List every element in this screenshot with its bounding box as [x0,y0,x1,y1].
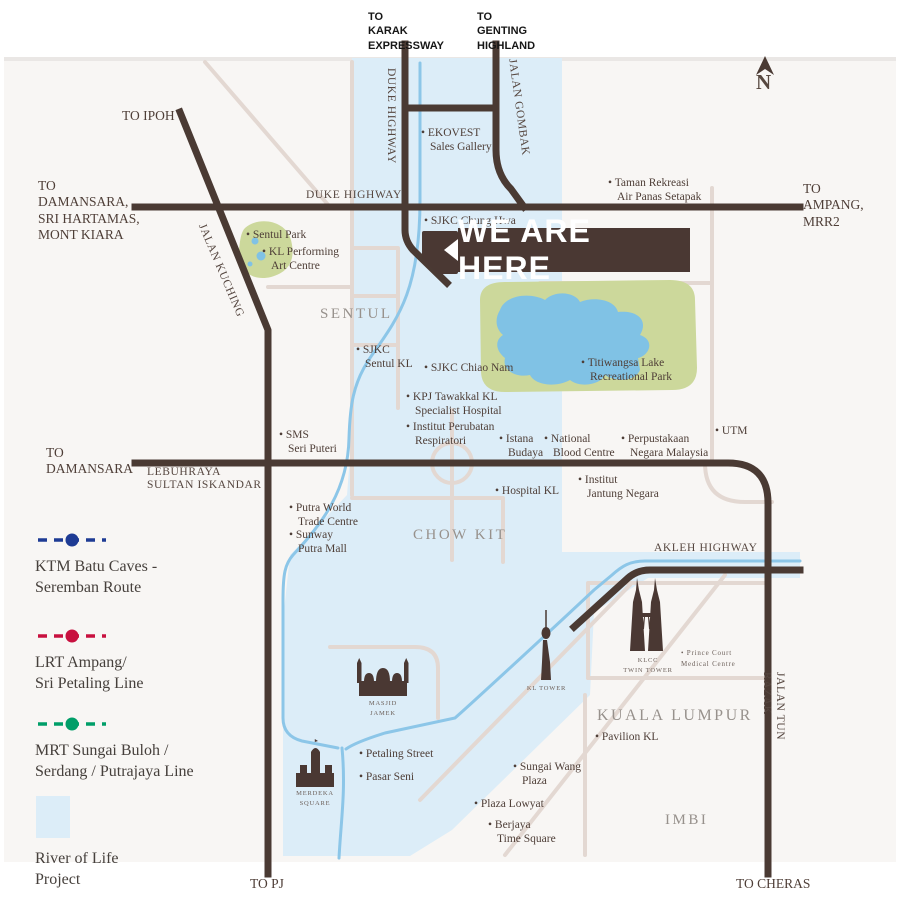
place-sjkc-sentul: • SJKC Sentul KL [356,344,413,371]
legend-river-swatch [36,796,70,838]
place-institut-perubatan: • Institut Perubatan Respiratori [406,421,494,448]
exit-genting-label: TO GENTING HIGHLAND [477,10,535,53]
place-sjkc-chiao-nam: • SJKC Chiao Nam [424,362,513,376]
caption-masjid-jamek: MASJID JAMEK [356,699,410,719]
road-label-lebuhraya: LEBUHRAYA SULTAN ISKANDAR [147,466,262,491]
place-petaling-street: • Petaling Street [359,748,433,762]
place-plaza-lowyat: • Plaza Lowyat [474,798,544,812]
district-kuala-lumpur: KUALA LUMPUR [597,707,753,725]
legend-mrt-symbol [36,716,108,732]
exit-ipoh: TO IPOH [122,108,175,124]
place-taman-rekreasi: • Taman Rekreasi Air Panas Setapak [608,177,701,204]
road-label-duke-h: DUKE HIGHWAY [306,189,402,202]
district-imbi: IMBI [665,812,708,829]
legend-mrt-label: MRT Sungai Buloh / Serdang / Putrajaya L… [35,740,194,782]
exit-cheras: TO CHERAS [736,876,810,892]
place-sentul-park: • Sentul Park [246,229,306,243]
place-kpj-tawakkal: • KPJ Tawakkal KL Specialist Hospital [406,391,502,418]
place-institut-jantung: • Institut Jantung Negara [578,474,659,501]
place-sms-seri-puteri: • SMS Seri Puteri [279,429,337,456]
we-are-here-pointer-icon [444,239,458,261]
district-chow-kit: CHOW KIT [413,527,507,544]
caption-merdeka-square: MERDEKA SQUARE [294,789,336,809]
legend-lrt-symbol [36,628,108,644]
place-istana-budaya: • Istana Budaya [499,433,543,460]
caption-prince-court: • Prince Court Medical Centre [681,648,741,669]
caption-kl-tower: KL TOWER [524,684,569,694]
exit-karak-label: TO KARAK EXPRESSWAY [368,10,444,53]
exit-ampang: TO AMPANG, MRR2 [803,181,864,230]
exit-damansara-multi: TO DAMANSARA, SRI HARTAMAS, MONT KIARA [38,178,140,244]
compass-label: N [756,70,771,95]
place-putra-world: • Putra World Trade Centre [289,502,358,529]
place-pasar-seni: • Pasar Seni [359,771,414,785]
road-label-akleh: AKLEH HIGHWAY [654,542,758,555]
place-sunway-putra: • Sunway Putra Mall [289,529,347,556]
legend-lrt-label: LRT Ampang/ Sri Petaling Line [35,652,143,694]
place-hospital-kl: • Hospital KL [495,485,559,499]
place-ekovest: • EKOVEST Sales Gallery [421,127,492,154]
exit-pj: TO PJ [250,876,284,892]
exit-damansara: TO DAMANSARA [46,445,133,478]
district-sentul: SENTUL [320,306,393,323]
legend-ktm-symbol [36,532,108,548]
place-sungai-wang: • Sungai Wang Plaza [513,761,581,788]
road-label-jalan-tun-razak: JALAN TUN RAZAK [761,672,786,786]
location-map: TO KARAK EXPRESSWAY TO GENTING HIGHLAND … [0,0,900,905]
place-pavilion: • Pavilion KL [595,731,658,745]
place-berjaya: • Berjaya Time Square [488,819,556,846]
road-label-duke-v: DUKE HIGHWAY [384,68,397,164]
place-kl-performing: • KL Performing Art Centre [262,246,339,273]
caption-klcc: KLCC TWIN TOWER [615,656,681,676]
place-national-blood: • National Blood Centre [544,433,615,460]
legend-river-label: River of Life Project [35,848,119,890]
place-utm: • UTM [715,425,750,439]
we-are-here-banner: WE ARE HERE [458,228,690,272]
place-perpustakaan: • Perpustakaan Negara Malaysia [621,433,708,460]
place-titiwangsa: • Titiwangsa Lake Recreational Park [581,357,672,384]
legend-ktm-label: KTM Batu Caves - Seremban Route [35,556,157,598]
